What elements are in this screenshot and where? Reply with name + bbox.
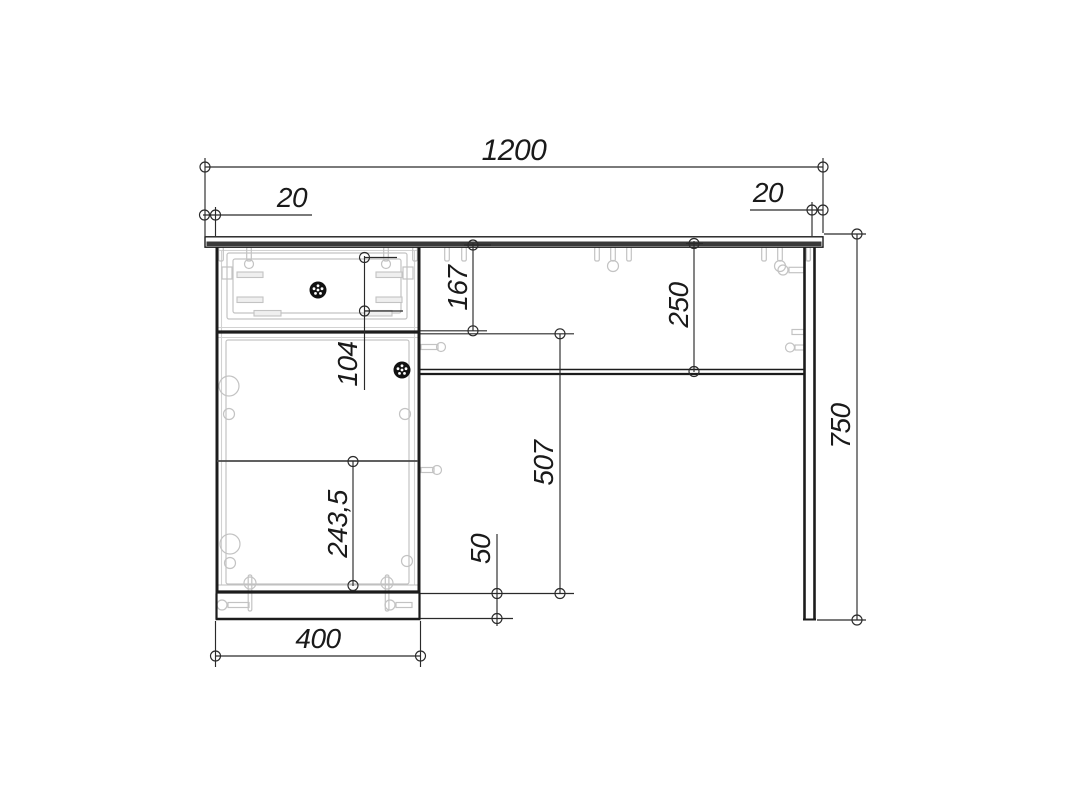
dim-right-overhang-label: 20 (752, 177, 784, 208)
drawing-canvas: 1200 20 20 167 250 104 (0, 0, 1067, 800)
desk-structure (205, 237, 823, 620)
dimension-overall-height: 750 (817, 229, 866, 625)
apron-rail (420, 370, 805, 375)
plinth-screws (217, 600, 412, 610)
dimension-apron-offset: 250 (663, 239, 703, 377)
dim-shelf-spacing-label: 243,5 (322, 489, 353, 558)
dim-total-width-label: 1200 (482, 134, 548, 167)
side-screws (421, 343, 446, 475)
dimension-drawer-section: 167 (421, 240, 492, 336)
dim-drawer-section-label: 167 (442, 263, 473, 310)
dimension-shelf-spacing: 243,5 (322, 457, 358, 591)
dim-apron-offset-label: 250 (663, 281, 694, 328)
door-knob-icon (394, 362, 411, 379)
drawer-knob-icon (310, 282, 327, 299)
dim-pedestal-width-label: 400 (295, 623, 341, 654)
dim-drawer-front-label: 104 (332, 341, 363, 386)
dimension-left-overhang: 20 (200, 182, 313, 236)
dim-plinth-label: 50 (465, 533, 496, 564)
dimension-plinth: 50 (421, 533, 514, 626)
door-outline (219, 340, 413, 611)
desktop (205, 237, 823, 247)
dimension-pedestal-width: 400 (211, 621, 426, 667)
dim-overall-height-label: 750 (825, 402, 856, 448)
desk-assembly-drawing: 1200 20 20 167 250 104 (0, 0, 1067, 800)
hardware-details (217, 247, 811, 611)
dim-door-section-label: 507 (528, 438, 559, 485)
right-leg (803, 247, 816, 620)
dim-left-overhang-label: 20 (276, 182, 308, 213)
dimension-right-overhang: 20 (750, 177, 828, 236)
